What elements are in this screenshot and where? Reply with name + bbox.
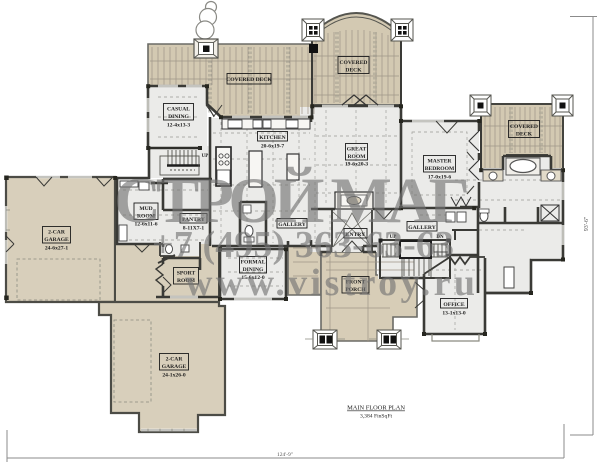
svg-text:UP: UP: [202, 154, 209, 159]
svg-text:DECK: DECK: [516, 132, 533, 138]
svg-text:KITCHEN: KITCHEN: [259, 135, 285, 141]
svg-text:COVERED: COVERED: [510, 124, 538, 130]
svg-text:124'-9": 124'-9": [277, 452, 293, 458]
svg-text:+7 (495) 363-63-63: +7 (495) 363-63-63: [152, 224, 454, 266]
svg-text:CASUAL: CASUAL: [167, 107, 190, 113]
svg-text:2-CAR: 2-CAR: [48, 230, 66, 236]
svg-text:COVERED DECK: COVERED DECK: [226, 77, 272, 83]
svg-text:MASTER: MASTER: [428, 159, 453, 165]
svg-text:GARAGE: GARAGE: [162, 364, 187, 370]
svg-text:24-6x27-1: 24-6x27-1: [45, 246, 69, 252]
svg-text:93'-6": 93'-6": [584, 216, 590, 231]
svg-text:ROOM: ROOM: [347, 154, 366, 160]
svg-text:COVERED: COVERED: [340, 60, 368, 66]
svg-text:12-4x13-3: 12-4x13-3: [167, 123, 191, 129]
svg-text:MAIN FLOOR PLAN: MAIN FLOOR PLAN: [347, 405, 405, 412]
svg-text:GREAT: GREAT: [347, 147, 367, 153]
svg-text:DECK: DECK: [345, 68, 362, 74]
svg-text:24-1x26-0: 24-1x26-0: [162, 373, 186, 379]
svg-text:20-6x19-7: 20-6x19-7: [261, 144, 285, 150]
svg-text:2-CAR: 2-CAR: [166, 357, 184, 363]
svg-text:3,384 FinSqFt: 3,384 FinSqFt: [360, 414, 392, 420]
svg-text:GARAGE: GARAGE: [44, 237, 69, 243]
svg-text:13-1x13-0: 13-1x13-0: [442, 311, 466, 317]
svg-text:DINING: DINING: [168, 114, 189, 120]
